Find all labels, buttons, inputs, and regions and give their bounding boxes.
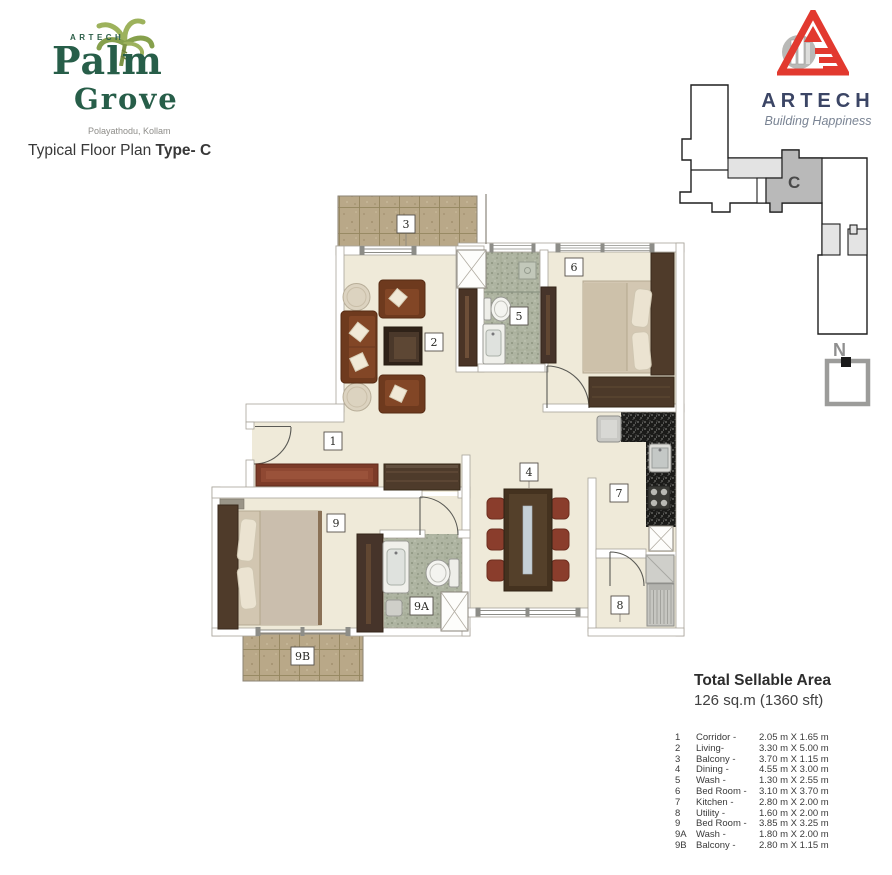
- svg-text:8: 8: [617, 599, 624, 612]
- dining-chair: [487, 560, 505, 581]
- toilet: [484, 298, 491, 320]
- svg-text:7: 7: [616, 487, 623, 500]
- room-label-9a: 9A: [410, 597, 433, 615]
- room-label-3: 3: [397, 215, 415, 233]
- svg-text:4: 4: [526, 466, 533, 479]
- dining-chair: [487, 498, 505, 519]
- room-label-6: 6: [565, 258, 583, 276]
- dining-chair: [551, 529, 569, 550]
- room-label-7: 7: [610, 484, 628, 502]
- legend-title: Total Sellable Area: [694, 672, 887, 690]
- legend-row: 7Kitchen -2.80 m X 2.00 m: [672, 798, 887, 809]
- stool: [386, 600, 402, 616]
- room-label-2: 2: [425, 333, 443, 351]
- wardrobe: [589, 377, 674, 407]
- legend-row: 2Living-3.30 m X 5.00 m: [672, 744, 887, 755]
- svg-text:9: 9: [333, 517, 340, 530]
- svg-text:3: 3: [403, 218, 410, 231]
- dining-furniture: [487, 489, 569, 591]
- legend-rows: 1Corridor -2.05 m X 1.65 m 2Living-3.30 …: [672, 733, 887, 852]
- dining-chair: [487, 529, 505, 550]
- room-label-9: 9: [327, 514, 345, 532]
- legend-area: 126 sq.m (1360 sft): [694, 692, 887, 709]
- room-label-9b: 9B: [291, 647, 314, 665]
- svg-text:2: 2: [431, 336, 438, 349]
- legend-row: 9BBalcony -2.80 m X 1.15 m: [672, 841, 887, 852]
- room-label-4: 4: [520, 463, 538, 481]
- dining-chair: [551, 498, 569, 519]
- room-label-1: 1: [324, 432, 342, 450]
- corridor-furniture: [256, 464, 460, 490]
- dining-chair: [551, 560, 569, 581]
- legend: Total Sellable Area 126 sq.m (1360 sft) …: [672, 672, 887, 852]
- room-label-8: 8: [611, 596, 629, 614]
- svg-text:1: 1: [330, 435, 337, 448]
- table-runner: [523, 506, 532, 574]
- brochure-page: { "brand": { "artech_small": "ARTECH", "…: [0, 0, 892, 875]
- room-label-5: 5: [510, 307, 528, 325]
- svg-text:6: 6: [571, 261, 578, 274]
- svg-text:5: 5: [516, 310, 523, 323]
- svg-text:9A: 9A: [414, 600, 430, 613]
- svg-text:9B: 9B: [295, 650, 310, 663]
- stove: [648, 486, 670, 509]
